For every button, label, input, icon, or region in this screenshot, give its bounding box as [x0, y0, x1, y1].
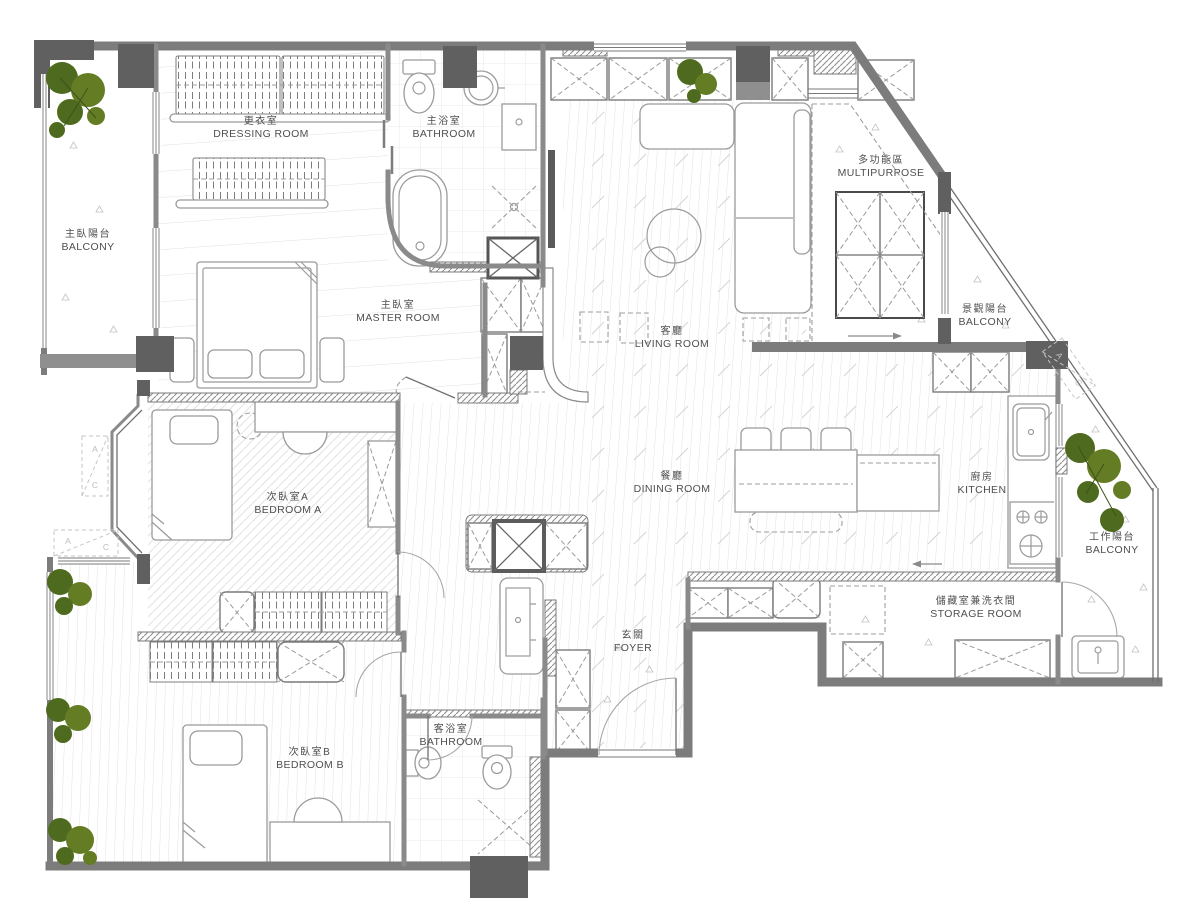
- svg-text:主浴室: 主浴室: [427, 114, 462, 127]
- svg-text:客浴室: 客浴室: [434, 722, 469, 735]
- svg-text:MULTIPURPOSE: MULTIPURPOSE: [838, 167, 925, 179]
- room-label-multipurpose: 多功能區MULTIPURPOSE: [838, 153, 925, 179]
- room-label-master-balcony: 主臥陽台BALCONY: [62, 227, 115, 253]
- svg-text:LIVING ROOM: LIVING ROOM: [635, 338, 709, 350]
- kitchen-sink-icon: [1013, 404, 1052, 460]
- balcony-door-icon: [1062, 582, 1117, 637]
- stove-icon: [1010, 502, 1056, 564]
- ac-marker-3: A C: [54, 530, 118, 556]
- svg-text:客廳: 客廳: [661, 324, 684, 337]
- plant-icon-3: [1065, 433, 1131, 532]
- svg-text:儲藏室兼洗衣間: 儲藏室兼洗衣間: [936, 594, 1017, 607]
- laundry-sink-icon: [1072, 636, 1124, 678]
- bathtub-icon: [393, 170, 447, 266]
- multipurpose-platform: [797, 89, 944, 342]
- svg-text:BALCONY: BALCONY: [959, 316, 1012, 328]
- shaft-master: [488, 238, 538, 278]
- svg-text:MASTER ROOM: MASTER ROOM: [356, 312, 440, 324]
- svg-text:玄關: 玄關: [622, 628, 645, 641]
- ac-letter-a: A: [65, 536, 71, 546]
- svg-text:BALCONY: BALCONY: [62, 241, 115, 253]
- svg-text:廚房: 廚房: [971, 470, 994, 483]
- wall-toilet-icon: [406, 747, 441, 779]
- plant-icon-1: [46, 62, 105, 138]
- toilet-b-icon: [482, 746, 512, 789]
- tv-icon: [548, 150, 555, 248]
- svg-text:工作陽台: 工作陽台: [1089, 530, 1135, 543]
- room-label-work-balcony: 工作陽台BALCONY: [1086, 530, 1139, 556]
- ac-marker-2: A C: [82, 436, 108, 496]
- svg-text:次臥室B: 次臥室B: [289, 745, 332, 758]
- svg-text:主臥陽台: 主臥陽台: [65, 227, 111, 240]
- floor-plan-canvas: A C A C A C 更衣室DRESSING ROOM 主浴室BATHROOM…: [0, 0, 1200, 922]
- slide-arrow-icon: [848, 333, 902, 340]
- svg-text:BALCONY: BALCONY: [1086, 544, 1139, 556]
- desk-b-icon: [270, 822, 390, 866]
- room-label-view-balcony: 景觀陽台BALCONY: [959, 302, 1012, 328]
- svg-text:KITCHEN: KITCHEN: [958, 484, 1007, 496]
- guest-vanity: [500, 578, 543, 674]
- ac-letter-c: C: [1073, 377, 1085, 388]
- kitchen-fixtures: [1008, 396, 1056, 568]
- toilet-icon: [403, 60, 435, 113]
- dining-table-icon: [735, 450, 857, 512]
- ac-letter-c: C: [92, 480, 98, 490]
- ac-letter-a: A: [92, 444, 98, 454]
- nightstand-right: [320, 338, 344, 382]
- svg-text:主臥室: 主臥室: [381, 298, 416, 311]
- svg-text:DRESSING ROOM: DRESSING ROOM: [213, 128, 309, 140]
- ac-letter-c: C: [103, 542, 109, 552]
- desk-a-icon: [255, 398, 398, 432]
- svg-text:BATHROOM: BATHROOM: [419, 736, 482, 748]
- svg-text:多功能區: 多功能區: [858, 153, 904, 166]
- svg-text:BATHROOM: BATHROOM: [412, 128, 475, 140]
- svg-text:次臥室A: 次臥室A: [267, 490, 310, 503]
- svg-text:BEDROOM A: BEDROOM A: [254, 504, 321, 516]
- svg-text:更衣室: 更衣室: [244, 114, 279, 127]
- vanity-counter: [502, 104, 536, 150]
- svg-text:BEDROOM B: BEDROOM B: [276, 759, 344, 771]
- svg-text:景觀陽台: 景觀陽台: [962, 302, 1008, 315]
- floor-plan-page: A C A C A C 更衣室DRESSING ROOM 主浴室BATHROOM…: [0, 0, 1200, 922]
- shaft-foyer: [466, 515, 588, 572]
- svg-text:STORAGE ROOM: STORAGE ROOM: [930, 608, 1022, 620]
- svg-text:餐廳: 餐廳: [661, 469, 684, 482]
- svg-text:FOYER: FOYER: [614, 642, 652, 654]
- svg-text:DINING ROOM: DINING ROOM: [634, 483, 711, 495]
